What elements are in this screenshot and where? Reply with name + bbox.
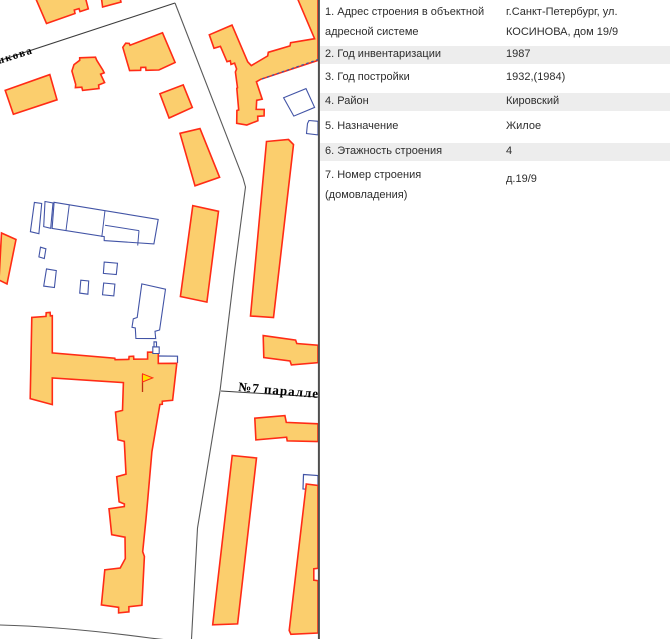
svg-text:№7 паралле: №7 паралле <box>238 379 320 401</box>
svg-text:шкова: шкова <box>0 44 35 67</box>
